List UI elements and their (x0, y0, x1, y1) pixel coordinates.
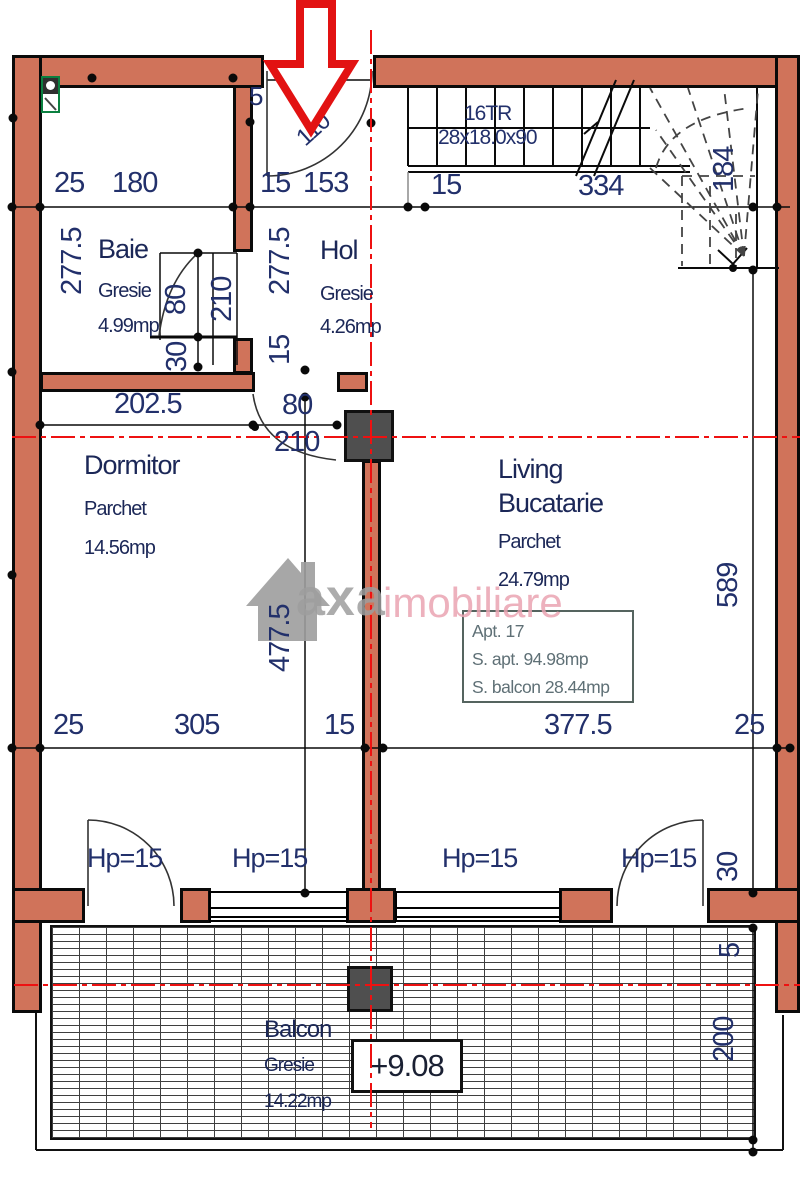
dim-bottom-1: 305 (174, 711, 219, 740)
dim-entrance-side: 5 (249, 83, 262, 109)
dim-living-height: 589 (714, 563, 743, 608)
dim-baie-door-width: 80 (162, 285, 191, 315)
dim-stair-width: 184 (710, 147, 739, 192)
room-name-hol: Hol (320, 237, 358, 264)
room-finish-baie: Gresie (98, 281, 151, 301)
column-balcony (347, 966, 393, 1012)
room-name-living2: Bucatarie (498, 490, 603, 517)
room-name-living: Living (498, 456, 563, 483)
room-area-balcon: 14.22mp (264, 1092, 331, 1111)
parapet-label-1: Hp=15 (87, 845, 162, 872)
dim-balcony-gap: 5 (716, 943, 745, 958)
dim-dormitor-top: 202.5 (114, 390, 182, 419)
window-living (395, 891, 561, 922)
wall-left (12, 55, 42, 1013)
dim-baie-wall: 30 (163, 342, 192, 372)
dim-hol-wall: 15 (266, 335, 295, 365)
balcony-area: S. balcon 28.44mp (472, 673, 632, 701)
dim-top-4: 15 (431, 171, 461, 200)
dim-baie-door-height: 210 (208, 277, 237, 322)
elevation-marker: +9.08 (351, 1039, 463, 1093)
room-finish-living: Parchet (498, 532, 560, 552)
dim-baie-height: 277.5 (58, 227, 87, 295)
dim-bottom-3: 377.5 (544, 711, 612, 740)
wall-bottom-pier1 (180, 888, 211, 923)
dim-dormitor-door-width: 80 (282, 391, 312, 420)
dim-top-1: 180 (112, 169, 157, 198)
wall-bottom-pier3 (559, 888, 613, 923)
column-center (344, 410, 394, 462)
wall-right (775, 55, 800, 1013)
wall-hol-stub (337, 372, 368, 392)
room-area-hol: 4.26mp (320, 317, 381, 337)
dim-top-5: 334 (578, 172, 623, 201)
room-finish-hol: Gresie (320, 284, 373, 304)
bathroom-fixture-icon (41, 76, 60, 113)
room-finish-balcon: Gresie (264, 1056, 314, 1075)
dim-top-0: 25 (54, 169, 84, 198)
stairs-step-size: 28x18.0x90 (438, 127, 537, 148)
dim-top-2: 15 (260, 169, 290, 198)
wall-top-right (373, 55, 790, 88)
parapet-label-2: Hp=15 (232, 845, 307, 872)
room-finish-dormitor: Parchet (84, 499, 146, 519)
room-name-balcon: Balcon (264, 1018, 331, 1042)
wall-bottom-corner-right (707, 888, 800, 923)
floor-plan: axa imobiliare Baie Gresie 4.99mp Hol Gr… (0, 0, 800, 1196)
dim-entrance-door: 110 (292, 109, 334, 150)
dim-bottom-0: 25 (53, 711, 83, 740)
wall-bottom-corner-left (12, 888, 85, 923)
wall-dormitor-living (362, 460, 381, 893)
dim-bottom-2: 15 (324, 711, 354, 740)
room-area-baie: 4.99mp (98, 316, 159, 336)
room-name-dormitor: Dormitor (84, 452, 180, 479)
parapet-label-4: Hp=15 (621, 845, 696, 872)
wall-bottom-pier2 (346, 888, 396, 923)
parapet-label-3: Hp=15 (442, 845, 517, 872)
dim-hol-height: 277.5 (266, 227, 295, 295)
dim-balcony-depth: 200 (710, 1017, 739, 1062)
dim-dormitor-door-height: 210 (274, 428, 319, 457)
wall-baie-hol-stub (233, 338, 253, 374)
room-area-living: 24.79mp (498, 570, 569, 590)
dim-parapet-thickness: 30 (714, 852, 743, 882)
dim-bottom-4: 25 (734, 711, 764, 740)
room-area-dormitor: 14.56mp (84, 538, 155, 558)
dim-dormitor-height: 477.5 (266, 604, 295, 672)
dim-top-3: 153 (303, 169, 348, 198)
window-dormitor (209, 891, 348, 922)
apartment-area: S. apt. 94.98mp (472, 645, 632, 673)
balcony-tile-hatch (50, 925, 756, 1140)
watermark-brand: axa (296, 572, 386, 624)
room-name-baie: Baie (98, 236, 148, 263)
stairs-count-label: 16TR (464, 103, 511, 124)
